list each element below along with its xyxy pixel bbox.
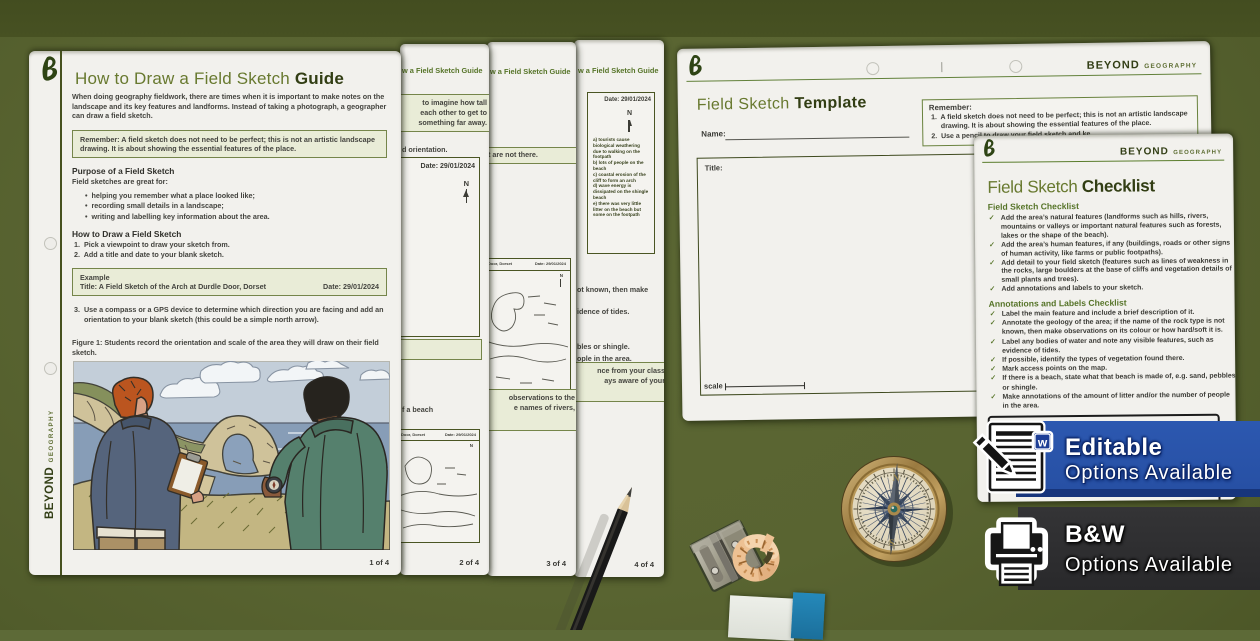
svg-text:w: w: [1037, 436, 1048, 450]
